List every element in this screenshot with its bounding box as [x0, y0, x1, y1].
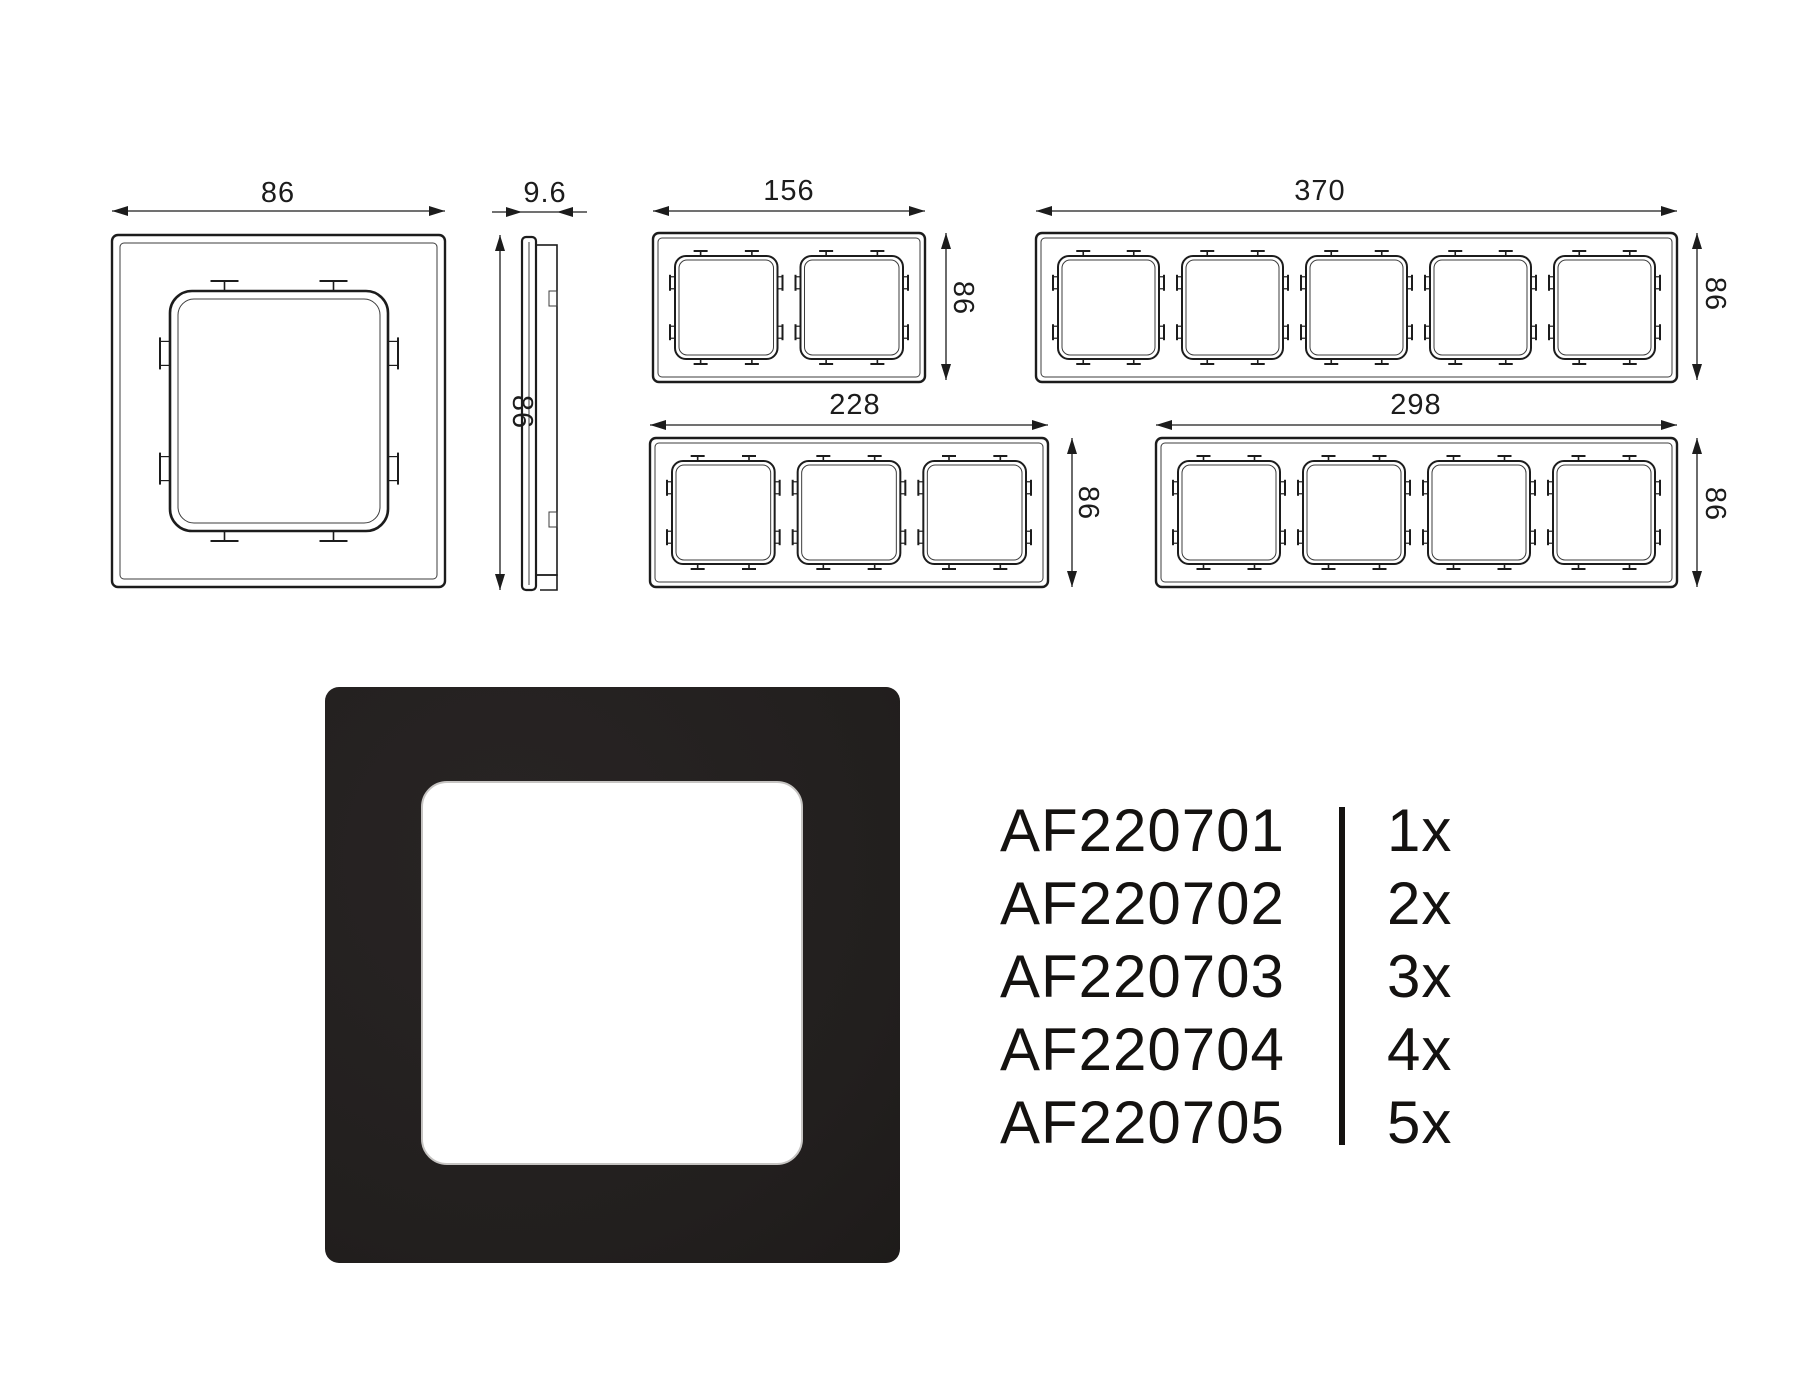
dim-label-three-gang-width: 228	[829, 389, 880, 421]
product-qty: 1x	[1387, 794, 1452, 867]
frame-1-gang	[112, 235, 445, 587]
dim-label-five-gang-width: 370	[1294, 175, 1345, 207]
dim-label-side-depth: 9.6	[523, 177, 566, 209]
dim-label-five-gang-height: 86	[1699, 277, 1731, 311]
product-qty-column: 1x2x3x4x5x	[1387, 794, 1452, 1159]
spec-sheet: 86 9.6 156 228 370 298 86 86 86 86 86 AF…	[0, 0, 1800, 1400]
dim-label-four-gang-width: 298	[1390, 389, 1441, 421]
product-code: AF220702	[1000, 867, 1285, 940]
frame-2-gang	[653, 233, 925, 382]
dim-label-two-gang-height: 86	[947, 281, 979, 315]
product-code: AF220705	[1000, 1086, 1285, 1159]
dim-label-three-gang-height: 86	[1072, 486, 1104, 520]
dim-label-single-height: 86	[506, 395, 538, 429]
product-code: AF220704	[1000, 1013, 1285, 1086]
dimension-lines	[112, 206, 1702, 590]
product-code-table: AF220701AF220702AF220703AF220704AF220705…	[1000, 794, 1520, 1160]
black-frame-photo	[325, 687, 900, 1263]
product-qty: 3x	[1387, 940, 1452, 1013]
product-code: AF220703	[1000, 940, 1285, 1013]
frame-window-cutout	[421, 781, 803, 1165]
frame-3-gang	[650, 438, 1048, 587]
frame-4-gang	[1156, 438, 1677, 587]
frame-5-gang	[1036, 233, 1677, 382]
product-code: AF220701	[1000, 794, 1285, 867]
product-code-column: AF220701AF220702AF220703AF220704AF220705	[1000, 794, 1285, 1159]
product-qty: 4x	[1387, 1013, 1452, 1086]
technical-drawings: 86 9.6 156 228 370 298 86 86 86 86 86	[0, 0, 1800, 645]
frame-front-views	[112, 233, 1677, 587]
dim-label-two-gang-width: 156	[763, 175, 814, 207]
table-divider	[1339, 807, 1345, 1145]
dim-label-single-width: 86	[261, 177, 295, 209]
product-qty: 5x	[1387, 1086, 1452, 1159]
product-qty: 2x	[1387, 867, 1452, 940]
dim-label-four-gang-height: 86	[1699, 487, 1731, 521]
